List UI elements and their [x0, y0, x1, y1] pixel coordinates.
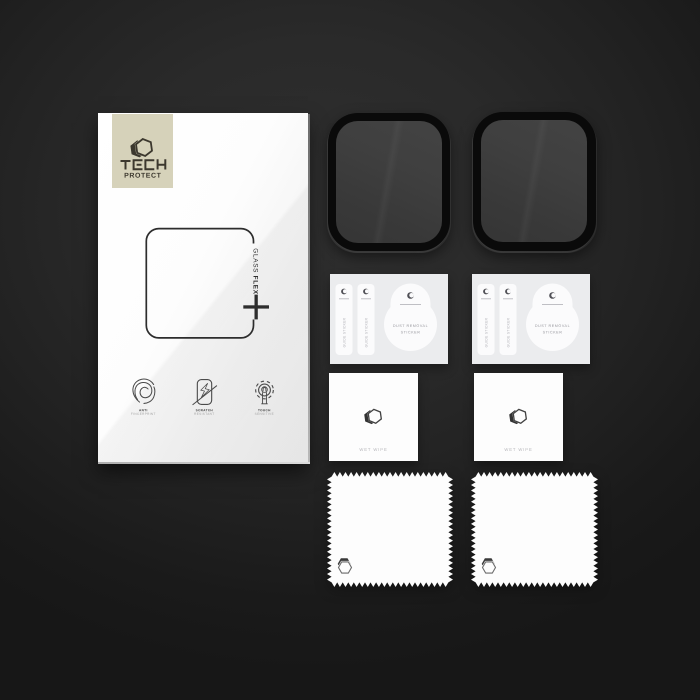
svg-text:FINGERPRINT: FINGERPRINT — [131, 412, 156, 416]
svg-text:STICKER: STICKER — [401, 330, 421, 334]
svg-text:WET WIPE: WET WIPE — [359, 447, 387, 452]
svg-text:SENSITIVE: SENSITIVE — [255, 412, 274, 416]
svg-text:GLASS FLEX: GLASS FLEX — [252, 248, 259, 294]
svg-text:GUIDE STICKER: GUIDE STICKER — [342, 317, 346, 347]
svg-text:RESISTANT: RESISTANT — [194, 412, 214, 416]
svg-text:DUST REMOVAL: DUST REMOVAL — [393, 324, 428, 328]
svg-text:GUIDE STICKER: GUIDE STICKER — [364, 317, 368, 347]
